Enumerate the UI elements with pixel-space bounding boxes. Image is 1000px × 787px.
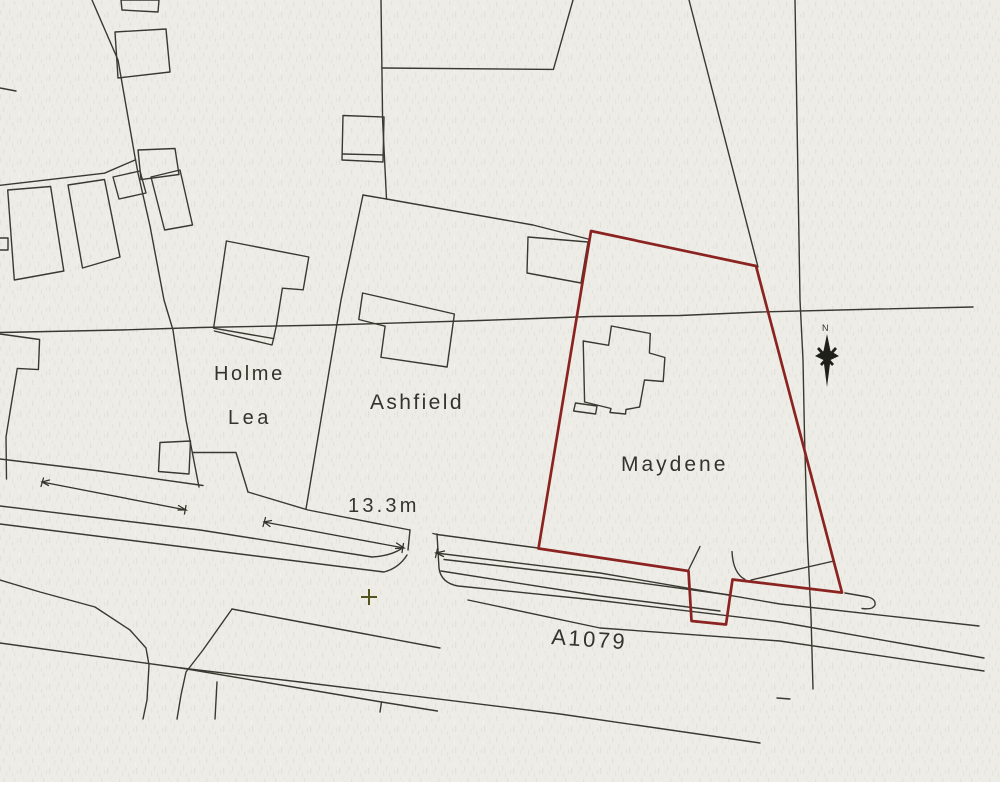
svg-text:13.3m: 13.3m bbox=[348, 495, 420, 517]
svg-text:A1079: A1079 bbox=[551, 624, 628, 654]
svg-text:N: N bbox=[822, 323, 829, 333]
svg-text:Holme: Holme bbox=[214, 363, 285, 385]
svg-text:Lea: Lea bbox=[228, 407, 272, 429]
svg-text:Maydene: Maydene bbox=[621, 453, 728, 476]
svg-text:Ashfield: Ashfield bbox=[370, 391, 464, 414]
